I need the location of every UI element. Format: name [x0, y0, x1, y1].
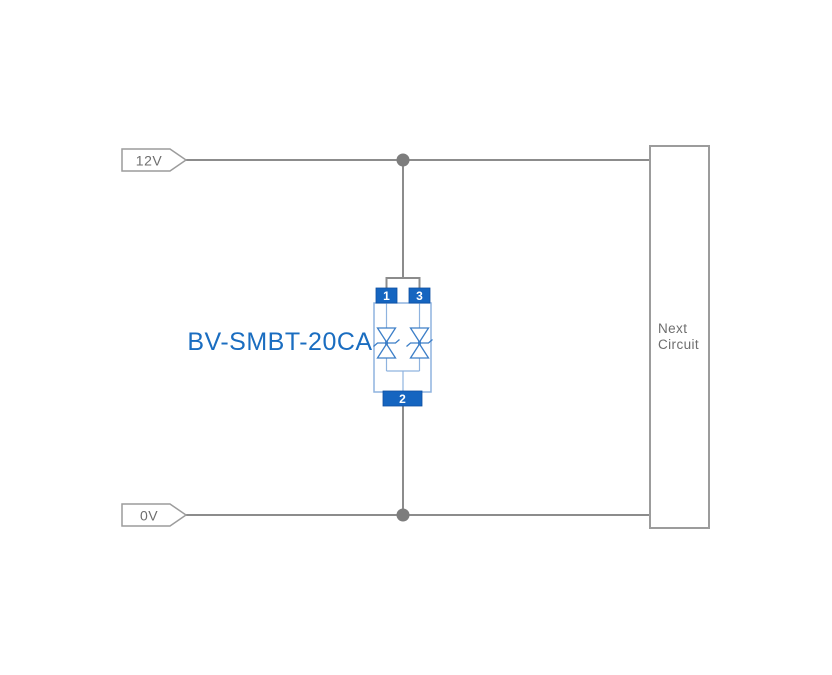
pin-1-label: 1	[383, 289, 390, 303]
net-tag-12v: 12V	[122, 149, 186, 171]
net-tag-0v: 0V	[122, 504, 186, 526]
diode-right-junction-dot	[418, 342, 421, 345]
next-circuit-line1: Next	[658, 321, 687, 336]
net-tag-12v-label: 12V	[136, 153, 163, 169]
junction-dot-top	[397, 154, 410, 167]
next-circuit-line2: Circuit	[658, 337, 699, 352]
diode-left-bottom-triangle	[378, 344, 396, 358]
junction-dot-bottom	[397, 509, 410, 522]
net-tag-0v-label: 0V	[140, 508, 158, 524]
circuit-diagram-canvas: 12V 0V Next Circuit	[0, 0, 832, 675]
pin-2-label: 2	[399, 392, 406, 406]
pin-3-label: 3	[416, 289, 423, 303]
diode-left-top-triangle	[378, 328, 396, 342]
tvs-diode-left	[374, 328, 400, 358]
pin-1: 1	[376, 288, 397, 303]
diode-left-junction-dot	[385, 342, 388, 345]
pin-3: 3	[409, 288, 430, 303]
diode-right-bottom-triangle	[411, 344, 429, 358]
next-circuit-block: Next Circuit	[650, 146, 709, 528]
tvs-component: 1 3 2	[374, 288, 433, 406]
circuit-diagram: 12V 0V Next Circuit	[0, 0, 832, 675]
diode-right-top-triangle	[411, 328, 429, 342]
tvs-diode-right	[407, 328, 433, 358]
component-label: BV-SMBT-20CA	[187, 328, 372, 356]
pin-2: 2	[383, 391, 422, 406]
